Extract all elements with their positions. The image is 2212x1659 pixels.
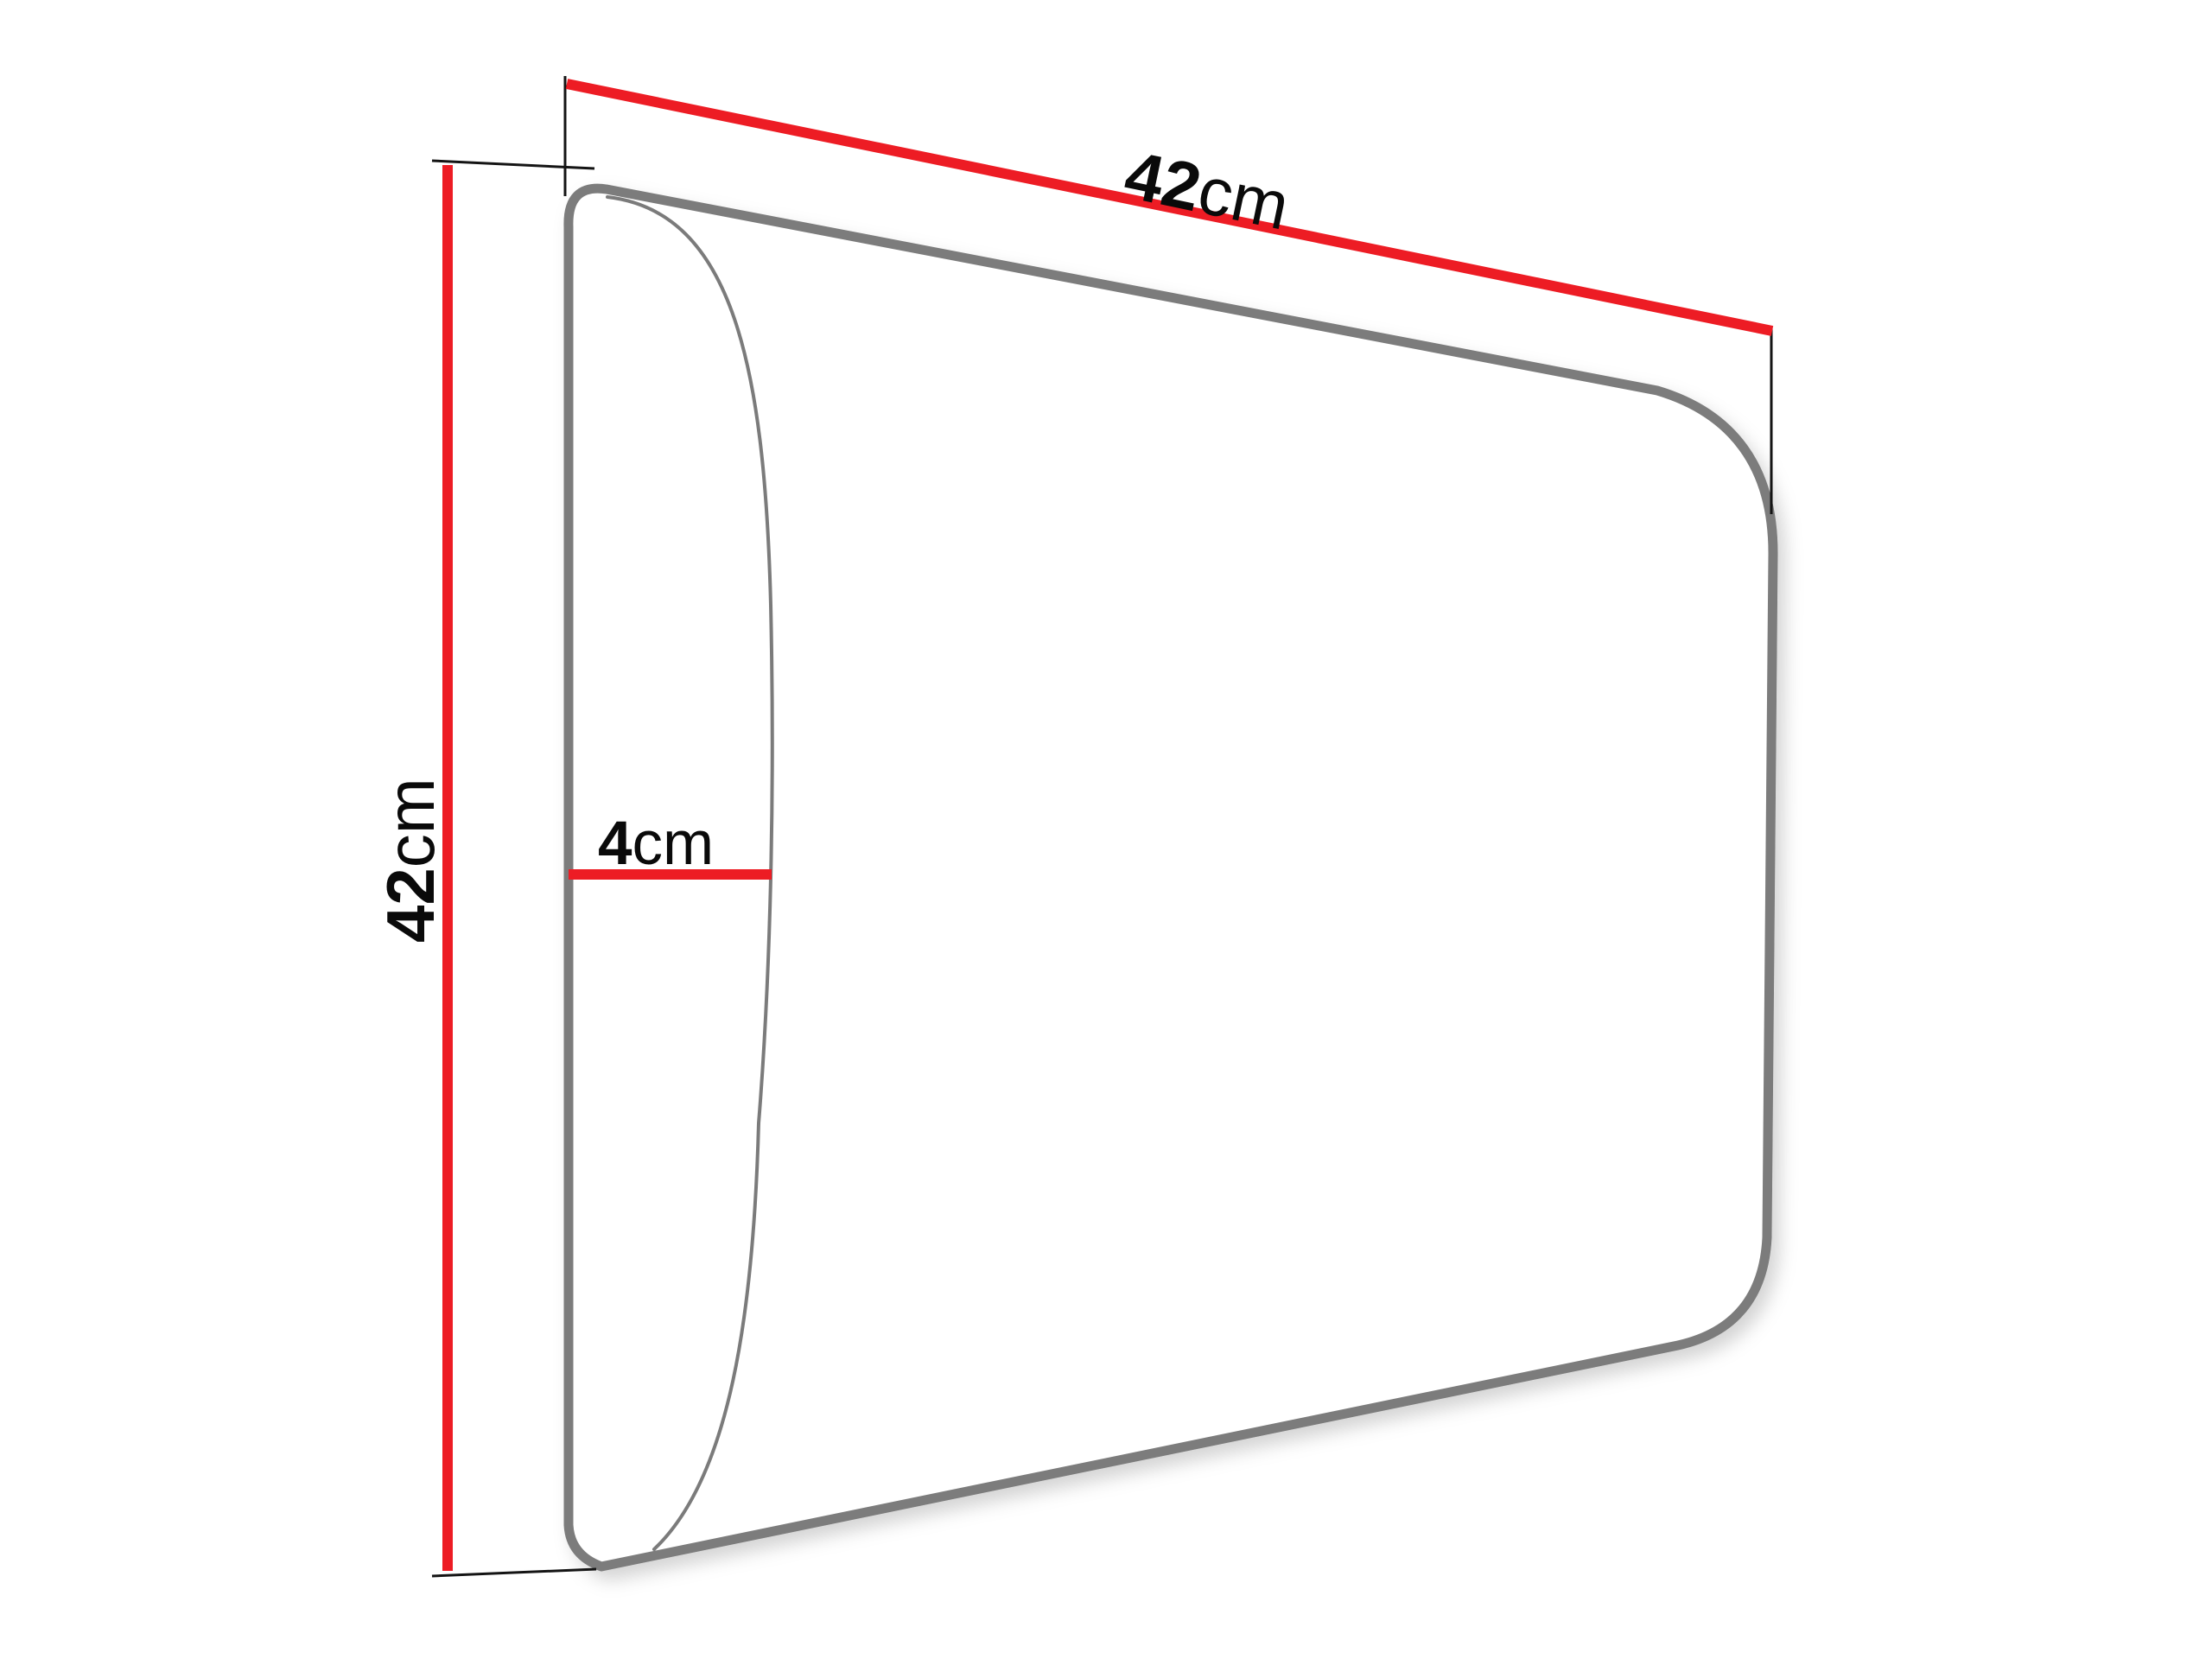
diagram-svg: 42cm 42cm 4cm bbox=[0, 0, 2212, 1659]
height-extension-line-bottom bbox=[432, 1569, 596, 1576]
depth-label: 4cm bbox=[598, 810, 714, 878]
height-label: 42cm bbox=[372, 778, 448, 943]
depth-value: 4 bbox=[598, 810, 632, 878]
depth-unit: cm bbox=[632, 810, 715, 878]
panel-dimension-drawing: 42cm 42cm 4cm bbox=[0, 0, 2212, 1659]
width-label: 42cm bbox=[1119, 137, 1296, 245]
height-unit: cm bbox=[372, 778, 448, 868]
width-unit: cm bbox=[1192, 151, 1295, 244]
height-value: 42 bbox=[372, 868, 448, 943]
height-extension-line-top bbox=[432, 161, 594, 168]
